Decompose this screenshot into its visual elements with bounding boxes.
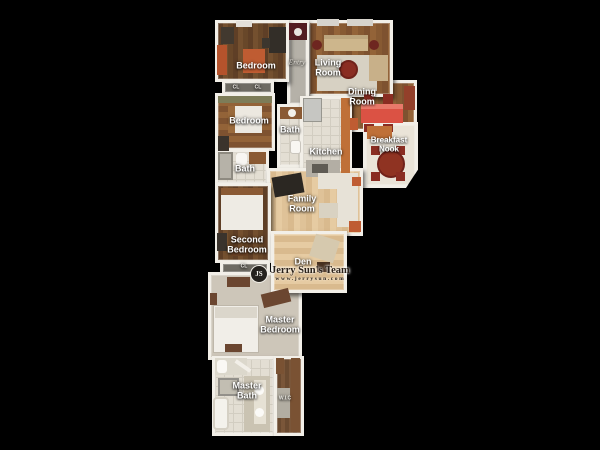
label-wic: W.I.C [279, 397, 291, 402]
lamp-table [312, 40, 322, 50]
label-closet: CL [233, 86, 240, 91]
label-living: Living Room [315, 59, 342, 78]
label-bedroom1: Bedroom [236, 61, 276, 71]
coffee-table [339, 60, 358, 79]
decor-bowl [294, 28, 302, 36]
label-closet: CL [255, 86, 262, 91]
label-family: Family Room [288, 195, 317, 214]
window [347, 19, 373, 26]
wardrobe [221, 27, 234, 44]
armchair [369, 55, 388, 81]
bench [227, 277, 250, 287]
desk-chair [262, 38, 270, 48]
kitchen-counter [341, 98, 350, 176]
label-dining: Dining Room [348, 88, 376, 107]
accent-wall [218, 96, 272, 103]
label-master-bath: Master Bath [232, 382, 261, 401]
nook-chair [371, 172, 380, 181]
label-bath2: Bath [235, 164, 255, 174]
lamp-table [369, 40, 379, 50]
watermark: JS Jerry Sun's Team www.jerrysun.com [250, 265, 350, 283]
label-bedroom2: Bedroom [229, 116, 269, 126]
bench [210, 293, 217, 305]
ottoman [319, 203, 338, 218]
buffet-cabinet [404, 86, 415, 110]
dresser [217, 233, 227, 251]
sofa [217, 45, 227, 75]
label-closet: CL [241, 265, 248, 270]
wic-rug [277, 388, 290, 418]
dining-table [361, 104, 403, 123]
wall-art [236, 21, 252, 27]
fridge [303, 98, 322, 122]
desk [269, 27, 286, 53]
dining-chair [383, 94, 393, 104]
toilet [217, 360, 227, 373]
pillows [215, 307, 257, 318]
sectional-chaise [318, 173, 338, 189]
bathtub [213, 397, 229, 430]
vanity [249, 152, 266, 164]
toilet [290, 140, 301, 154]
label-second-bedroom: Second Bedroom [227, 236, 267, 255]
sink [288, 109, 296, 117]
team-logo-icon: JS [250, 265, 268, 283]
label-kitchen: Kitchen [309, 147, 342, 157]
side-table [352, 177, 361, 186]
closet-shelving [291, 358, 300, 432]
kitchen-sink [312, 164, 328, 173]
shower [218, 152, 233, 180]
nook-chair [396, 172, 405, 181]
bed [221, 188, 263, 230]
label-master-bedroom: Master Bedroom [260, 316, 300, 335]
sink [255, 408, 264, 417]
floor-plan: Bedroom Entry Living Room Dining Room Be… [0, 0, 600, 450]
team-website: www.jerrysun.com [275, 276, 345, 283]
side-table [349, 221, 361, 232]
watermark-text: Jerry Sun's Team www.jerrysun.com [271, 266, 350, 283]
label-nook: Breakfast Nook [371, 137, 407, 154]
dresser [218, 136, 229, 151]
living-sofa [324, 35, 368, 51]
label-bath1: Bath [280, 125, 300, 135]
label-entry: Entry [289, 57, 306, 67]
team-name: Jerry Sun's Team [271, 266, 350, 276]
window [317, 19, 339, 26]
stool [225, 344, 242, 352]
closet-shelving [276, 358, 284, 374]
